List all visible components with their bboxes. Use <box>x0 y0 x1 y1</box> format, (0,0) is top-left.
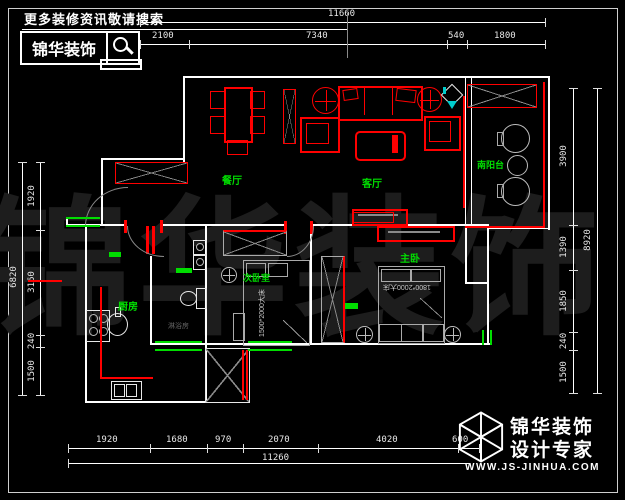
balcony-slider-line <box>465 78 466 226</box>
lamp-icon <box>356 326 373 343</box>
balcony-chair <box>501 124 530 153</box>
green-marker <box>345 303 358 309</box>
wardrobe-hatched <box>321 256 345 343</box>
wall <box>163 224 287 226</box>
toilet-tank <box>196 288 207 309</box>
wall <box>183 76 185 162</box>
wall <box>150 256 152 345</box>
sofa-line <box>364 88 365 115</box>
wall <box>310 224 312 345</box>
door-arc <box>127 226 164 257</box>
sofa-pillow <box>342 88 358 101</box>
coffee-table <box>355 131 406 161</box>
bed-pillow <box>381 269 411 282</box>
dining-chair <box>210 91 225 109</box>
floorplan-canvas: 锦华装饰 更多装修资讯敬请搜索 锦华装饰 11660 2100 7340 540… <box>0 0 625 500</box>
entry-arrow-icon <box>447 101 457 109</box>
balcony-wall-red <box>463 96 465 208</box>
screen-partition <box>283 89 296 144</box>
dining-chair <box>227 140 248 155</box>
lamp-icon <box>221 267 237 283</box>
balcony-chair <box>501 177 530 206</box>
sofa-line <box>392 88 393 115</box>
balcony-cabinet-hatched <box>467 84 537 108</box>
window-green <box>482 330 492 345</box>
window-green <box>155 341 202 351</box>
balcony-table <box>507 155 528 176</box>
dining-chair <box>210 116 225 134</box>
counter-line <box>100 377 153 379</box>
logo-tagline-text: 设计专家 <box>510 435 594 462</box>
sofa-pillow <box>395 88 416 103</box>
tv-cabinet-master <box>377 226 455 242</box>
stove-burner <box>89 327 98 336</box>
bed-fold <box>283 320 307 343</box>
bed-pillow <box>268 263 288 277</box>
sink-bowl <box>114 384 125 397</box>
armchair-cushion <box>429 121 451 142</box>
structural-column <box>465 224 489 284</box>
dining-table <box>224 87 253 143</box>
bath-sink-bowl <box>196 243 204 251</box>
balcony-wall-red <box>465 226 545 228</box>
cube-logo-icon <box>457 410 505 464</box>
master-bed-size-text: 1800*2000大床 <box>383 282 431 292</box>
coffee-table-item <box>392 135 398 153</box>
bed-drawer <box>422 324 444 342</box>
tv-screen <box>388 231 440 233</box>
logo-website-text: WWW.JS-JINHUA.COM <box>465 462 600 473</box>
room-label-balcony: 南阳台 <box>477 158 504 171</box>
bed-pillow <box>411 269 441 282</box>
red-mark <box>28 280 62 282</box>
balcony-wall-red <box>543 82 545 228</box>
red-jamb <box>242 350 244 400</box>
sink-bowl <box>126 384 137 397</box>
entry-marker <box>443 87 446 94</box>
lamp-icon <box>444 326 461 343</box>
room-label-living: 客厅 <box>362 175 382 190</box>
wardrobe-hatched <box>223 230 287 256</box>
shoe-cabinet <box>115 162 188 184</box>
wall <box>85 401 207 403</box>
room-label-dining: 餐厅 <box>222 172 242 187</box>
balcony-chair-arm <box>497 132 504 146</box>
room-label-master-bedroom: 主卧 <box>400 250 420 265</box>
bed-fold <box>420 298 442 318</box>
second-bed-size-text: 1500*2000大床 <box>257 283 267 343</box>
plant-icon <box>312 87 339 114</box>
dining-chair <box>250 91 265 109</box>
window-green <box>66 217 100 227</box>
wall <box>487 228 548 229</box>
balcony-chair-arm <box>497 184 504 198</box>
wall <box>548 76 550 230</box>
bath-sink-bowl <box>196 258 204 266</box>
bedside-chest <box>233 313 245 341</box>
bed-drawer <box>401 324 424 342</box>
green-marker <box>109 252 121 257</box>
toilet-bowl <box>180 291 197 306</box>
bed-drawer <box>379 324 402 342</box>
room-label-kitchen: 厨房 <box>118 298 138 313</box>
plant-icon <box>417 87 442 112</box>
tv-shelf <box>352 212 394 223</box>
red-jamb <box>246 350 248 400</box>
wall-pillar <box>100 59 142 70</box>
wall <box>101 158 185 160</box>
dining-chair <box>250 116 265 134</box>
stove-burner <box>89 314 98 323</box>
room-label-shower: 淋浴房 <box>168 321 189 331</box>
green-marker <box>176 268 192 273</box>
footer-logo: 锦华装饰 设计专家 WWW.JS-JINHUA.COM <box>455 406 617 486</box>
counter-line <box>100 287 102 379</box>
armchair-cushion <box>306 123 329 144</box>
wall <box>183 76 548 78</box>
